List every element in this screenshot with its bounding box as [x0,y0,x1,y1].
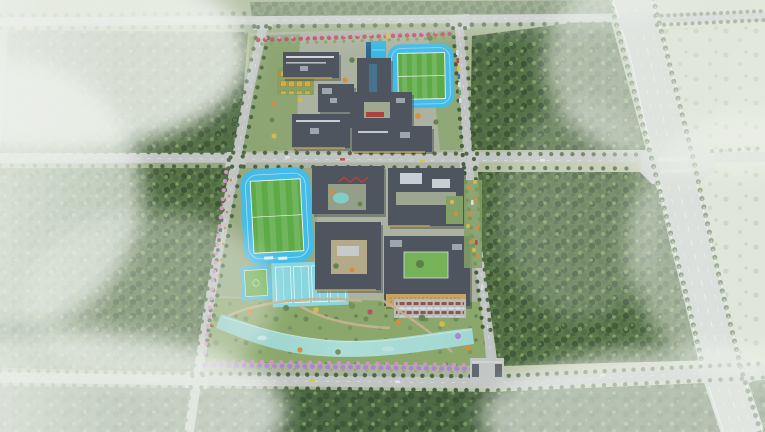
aerial-render [0,0,765,432]
campus-aerial-scene [0,0,765,432]
fog-overlay [0,0,765,432]
